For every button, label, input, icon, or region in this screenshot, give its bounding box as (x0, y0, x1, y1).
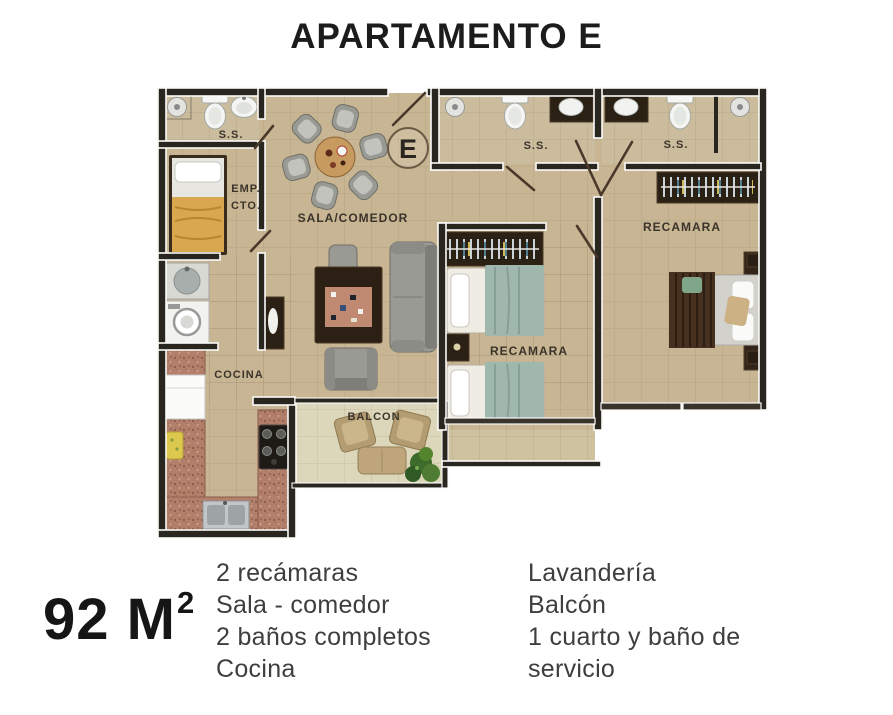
feature-item: 2 baños completos (216, 621, 431, 653)
feature-list-right: Lavandería Balcón 1 cuarto y baño de ser… (528, 557, 804, 685)
closet (443, 232, 543, 266)
label-balcony: BALCON (347, 411, 400, 423)
label-kitchen: COCINA (214, 369, 263, 381)
window-strip (601, 403, 681, 410)
label-service-room-2: CTO. (231, 200, 261, 212)
window-strip (445, 418, 595, 424)
window-strip (683, 403, 761, 410)
area-value: 92 M (43, 587, 176, 652)
fridge-icon (165, 375, 205, 419)
washer-icon (165, 301, 209, 343)
shower-partition (714, 93, 718, 153)
feature-item: Lavandería (528, 557, 804, 589)
label-bathroom2: S.S. (524, 140, 549, 152)
label-bathroom1: S.S. (219, 129, 244, 141)
cutting-board (166, 432, 183, 459)
label-living-dining: SALA/COMEDOR (298, 211, 409, 225)
armchair (325, 348, 377, 390)
label-service-room-1: EMP. (231, 183, 260, 195)
nightstand (747, 254, 760, 267)
feature-list-left: 2 recámaras Sala - comedor 2 baños compl… (216, 557, 431, 685)
feature-item: Balcón (528, 589, 804, 621)
page-title: APARTAMENTO E (0, 17, 893, 57)
floorplan-svg: E (155, 85, 770, 553)
label-bedroom-middle: RECAMARA (490, 344, 568, 358)
feature-item: Cocina (216, 653, 431, 685)
unit-letter: E (399, 134, 417, 164)
dining-table (315, 137, 355, 177)
kitchen-sink (203, 501, 249, 529)
laundry-area (165, 263, 209, 343)
laundry-sink (165, 263, 209, 299)
nightstand (445, 334, 469, 361)
feature-item: 1 cuarto y baño de servicio (528, 621, 804, 685)
label-bathroom3: S.S. (664, 139, 689, 151)
flyer: APARTAMENTO E (0, 0, 893, 715)
sink-icon (231, 96, 257, 118)
stove-icon (259, 425, 288, 469)
nightstand (747, 351, 760, 364)
label-bedroom-right: RECAMARA (643, 220, 721, 234)
twin-bed-2 (447, 362, 544, 423)
area-label: 92 M2 (43, 586, 194, 653)
coffee-table (315, 267, 382, 343)
accent-pillow (682, 277, 702, 293)
feature-item: 2 recámaras (216, 557, 431, 589)
closet (657, 172, 759, 203)
area-superscript: 2 (177, 585, 195, 620)
bedroom-middle-furniture (443, 232, 544, 423)
feature-item: Sala - comedor (216, 589, 431, 621)
sofa (390, 242, 437, 352)
service-bed (169, 155, 227, 255)
floorplan-image: E (155, 85, 770, 553)
balcony-table (358, 447, 406, 474)
unit-letter-badge: E (388, 128, 428, 168)
twin-bed-1 (447, 265, 544, 336)
